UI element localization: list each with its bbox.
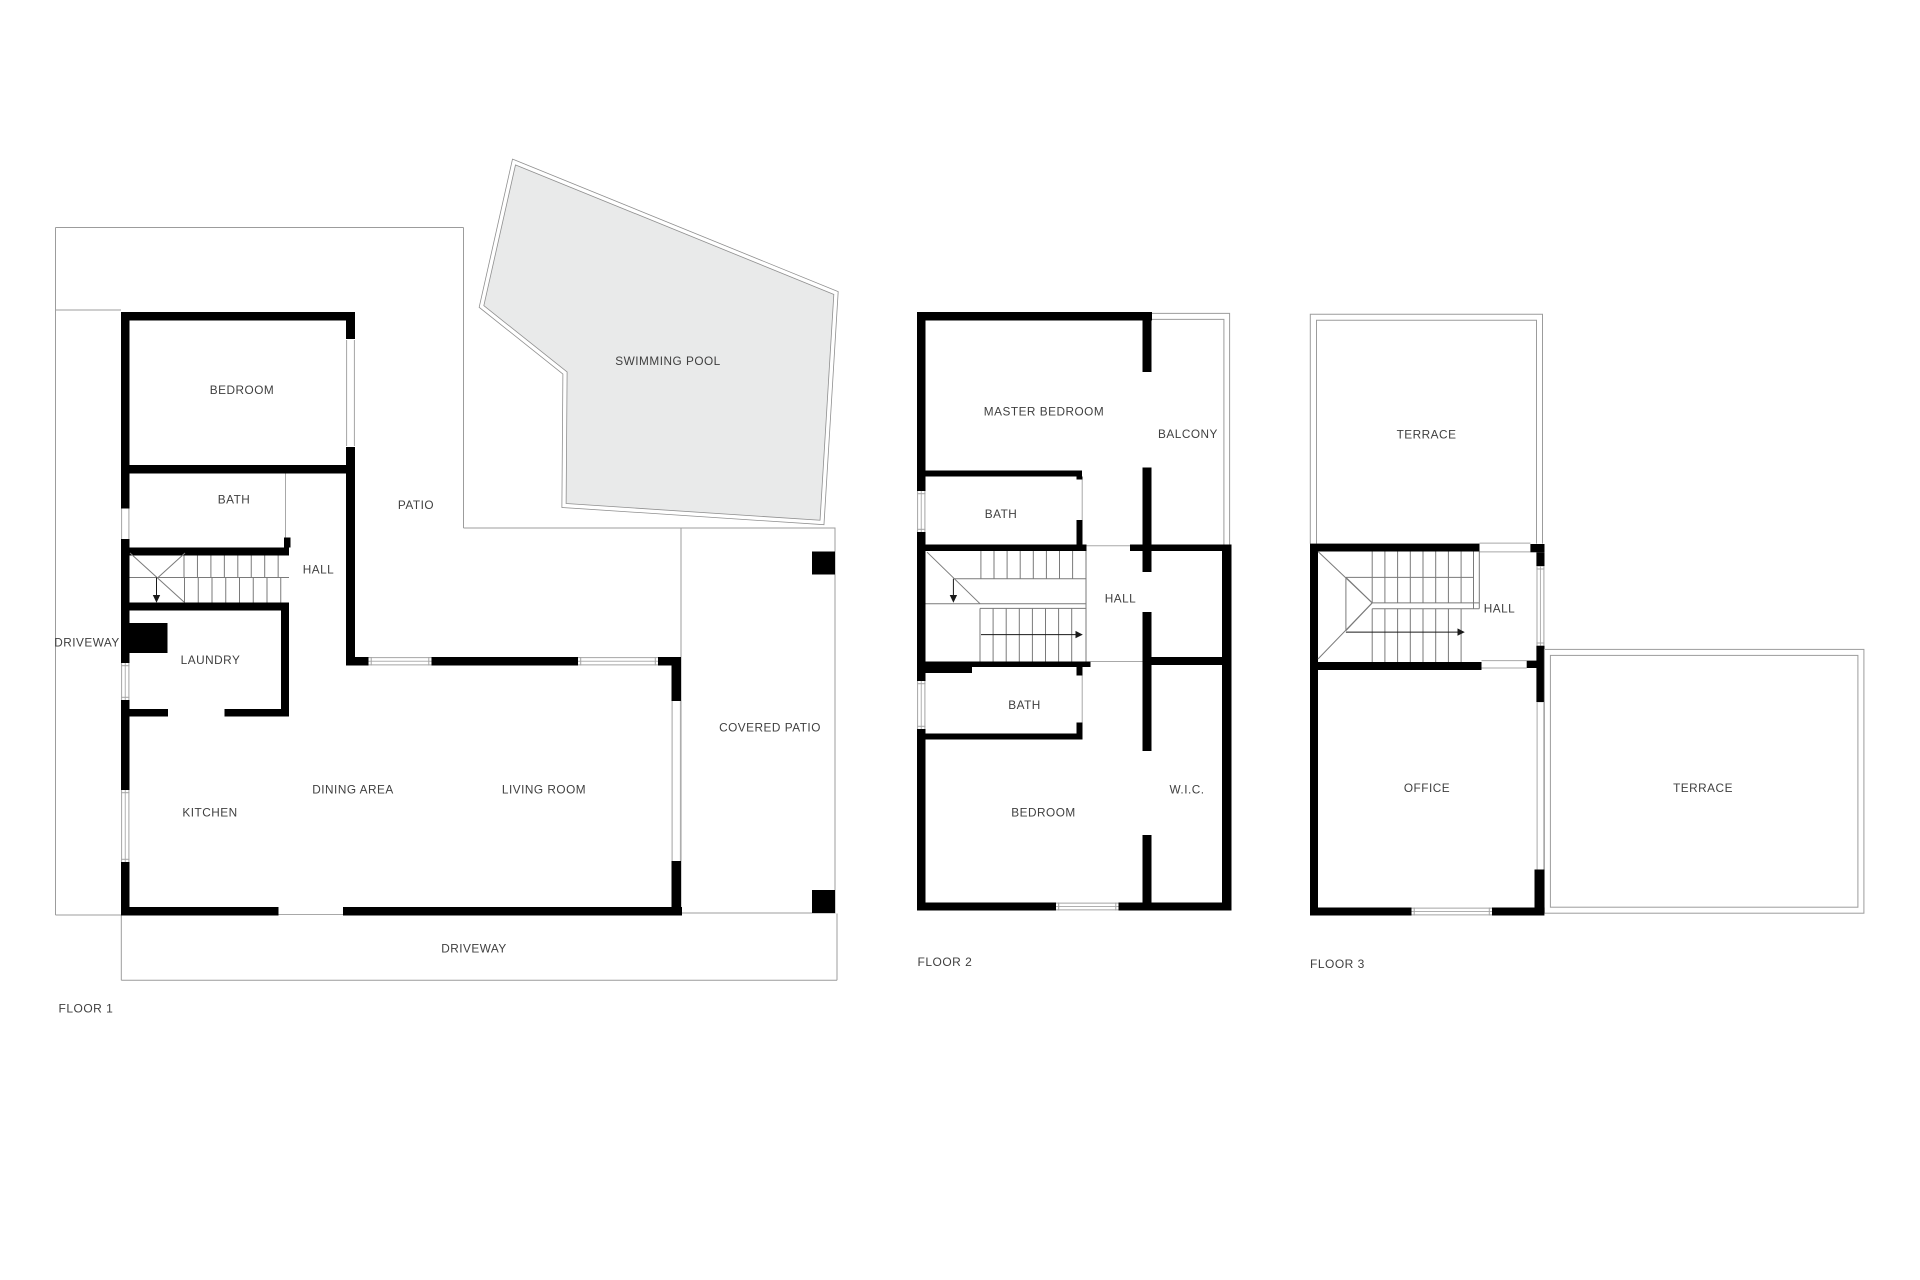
svg-text:FLOOR 1: FLOOR 1 (59, 1002, 114, 1016)
svg-text:BEDROOM: BEDROOM (1011, 806, 1075, 820)
svg-text:SWIMMING POOL: SWIMMING POOL (615, 354, 720, 368)
svg-text:BATH: BATH (1008, 698, 1041, 712)
svg-text:FLOOR 3: FLOOR 3 (1310, 957, 1365, 971)
svg-text:BEDROOM: BEDROOM (210, 383, 274, 397)
svg-text:FLOOR 2: FLOOR 2 (918, 955, 973, 969)
svg-text:DRIVEWAY: DRIVEWAY (54, 636, 120, 650)
svg-text:HALL: HALL (303, 563, 335, 577)
svg-text:KITCHEN: KITCHEN (182, 806, 237, 820)
svg-text:LIVING ROOM: LIVING ROOM (502, 783, 586, 797)
svg-text:TERRACE: TERRACE (1397, 428, 1457, 442)
svg-text:DRIVEWAY: DRIVEWAY (441, 942, 507, 956)
svg-text:BATH: BATH (218, 493, 251, 507)
svg-text:HALL: HALL (1105, 592, 1137, 606)
svg-text:PATIO: PATIO (398, 498, 434, 512)
svg-text:W.I.C.: W.I.C. (1169, 783, 1204, 797)
svg-text:LAUNDRY: LAUNDRY (181, 653, 241, 667)
svg-text:TERRACE: TERRACE (1673, 781, 1733, 795)
svg-text:HALL: HALL (1484, 602, 1516, 616)
svg-text:DINING AREA: DINING AREA (312, 783, 394, 797)
svg-text:MASTER BEDROOM: MASTER BEDROOM (984, 405, 1104, 419)
svg-text:OFFICE: OFFICE (1404, 781, 1450, 795)
svg-text:BALCONY: BALCONY (1158, 427, 1218, 441)
svg-text:COVERED PATIO: COVERED PATIO (719, 721, 821, 735)
svg-text:BATH: BATH (985, 507, 1018, 521)
